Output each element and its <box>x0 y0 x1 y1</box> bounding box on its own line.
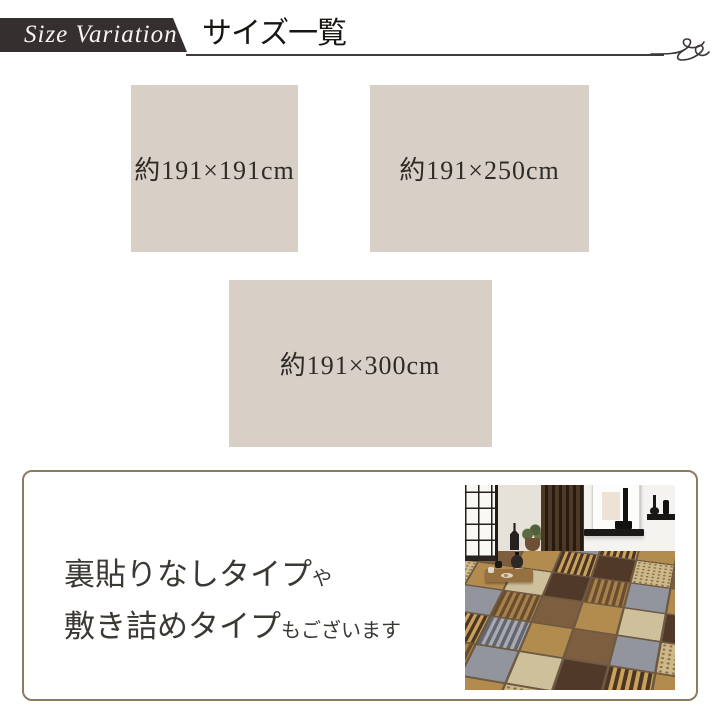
size-variation-section: Size Variation サイズ一覧 約191×191cm 約191×250… <box>0 0 720 720</box>
wall-shelf <box>584 529 644 536</box>
small-vase <box>663 500 669 514</box>
note-line-2: 敷き詰めタイプもございます <box>64 604 401 656</box>
size-swatch-191x191: 約191×191cm <box>131 85 298 252</box>
tatami-mat-cell <box>533 597 581 628</box>
size-label: 約191×300cm <box>280 345 440 382</box>
ribbon-label: Size Variation <box>0 18 178 52</box>
note-line-1-small: や <box>312 568 332 590</box>
tatami-mat-cell <box>507 652 562 690</box>
frame-art <box>602 492 620 520</box>
tatami-mat-cell <box>554 659 608 690</box>
note-line-1: 裏貼りなしタイプや <box>64 552 401 604</box>
note-box: 裏貼りなしタイプや 敷き詰めタイプもございます <box>22 470 698 701</box>
tatami-mat-cell <box>618 609 665 641</box>
tatami-mat-cell <box>544 573 590 601</box>
tatami-mat-cell <box>592 556 635 582</box>
right-wall-shelf <box>647 514 675 520</box>
tea-cup-dark <box>495 561 502 568</box>
wood-slat-partition <box>541 485 584 551</box>
note-line-2-main: 敷き詰めタイプ <box>64 609 281 644</box>
tatami-mat-cell <box>610 636 659 672</box>
tea-cup-light <box>488 567 494 573</box>
note-text: 裏貼りなしタイプや 敷き詰めタイプもございます <box>64 552 401 656</box>
snack-plate <box>501 573 513 578</box>
tatami-mat-cell <box>521 623 572 657</box>
size-variation-ribbon: Size Variation <box>0 18 187 52</box>
decanter-vase <box>653 495 656 514</box>
tatami-mat-cell <box>575 603 623 635</box>
page-title: サイズ一覧 <box>202 15 346 53</box>
tatami-mat-cell <box>565 629 615 664</box>
size-swatch-191x300: 約191×300cm <box>229 280 492 447</box>
decor-bottle <box>510 523 519 550</box>
size-label: 約191×191cm <box>134 150 294 187</box>
size-row-1: 約191×191cm 約191×250cm <box>0 85 720 252</box>
note-line-1-main: 裏貼りなしタイプ <box>64 557 312 592</box>
note-line-2-small: もございます <box>281 620 401 642</box>
tatami-mat-cell <box>625 584 669 613</box>
size-row-2: 約191×300cm <box>0 280 720 447</box>
teapot <box>511 555 523 568</box>
size-label: 約191×250cm <box>399 150 559 187</box>
shelf-objects <box>615 521 632 529</box>
size-swatch-191x250: 約191×250cm <box>370 85 589 252</box>
room-photo <box>465 485 675 690</box>
tatami-mat-cell <box>651 674 675 690</box>
plant-pot <box>525 538 540 551</box>
shoji-screen <box>465 485 498 561</box>
tatami-mat-cell <box>632 561 674 588</box>
title-underline <box>186 54 664 56</box>
calligraphy-flourish-icon <box>650 37 712 65</box>
tatami-mat-cell <box>554 551 598 577</box>
tatami-mat-cell <box>584 578 629 607</box>
frame-art-bar <box>623 488 628 522</box>
